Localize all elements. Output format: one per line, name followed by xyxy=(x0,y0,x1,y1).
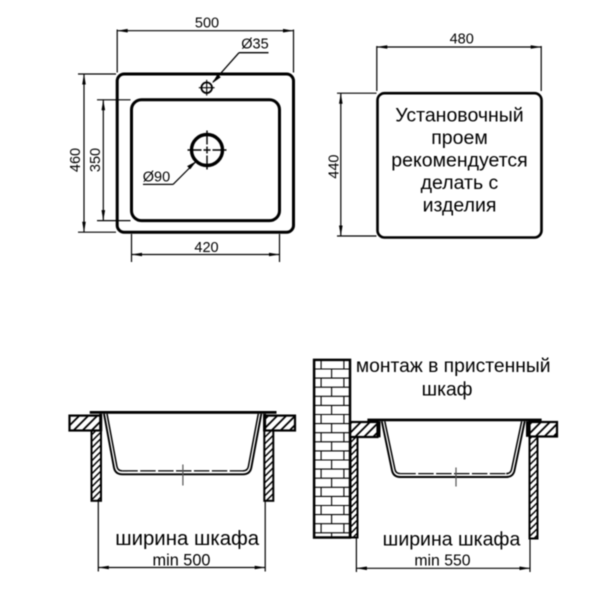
svg-text:проем: проем xyxy=(431,127,488,149)
svg-text:460: 460 xyxy=(68,148,84,172)
svg-text:min 500: min 500 xyxy=(153,552,211,570)
svg-text:440: 440 xyxy=(327,154,343,178)
svg-text:ширина шкафа: ширина шкафа xyxy=(383,529,521,551)
svg-text:изделия: изделия xyxy=(423,195,497,217)
svg-text:Установочный: Установочный xyxy=(395,105,523,127)
svg-text:480: 480 xyxy=(450,32,474,48)
svg-text:делать с: делать с xyxy=(421,172,499,194)
svg-text:шкаф: шкаф xyxy=(422,380,473,401)
svg-text:Ø90: Ø90 xyxy=(143,169,170,185)
svg-text:350: 350 xyxy=(88,148,104,172)
svg-text:500: 500 xyxy=(195,15,219,31)
svg-text:Ø35: Ø35 xyxy=(241,37,268,53)
svg-text:ширина шкафа: ширина шкафа xyxy=(115,528,260,550)
svg-text:min 550: min 550 xyxy=(414,553,470,570)
svg-text:420: 420 xyxy=(194,240,218,256)
svg-text:монтаж в пристенный: монтаж в пристенный xyxy=(356,356,551,377)
svg-text:рекомендуется: рекомендуется xyxy=(391,150,527,172)
